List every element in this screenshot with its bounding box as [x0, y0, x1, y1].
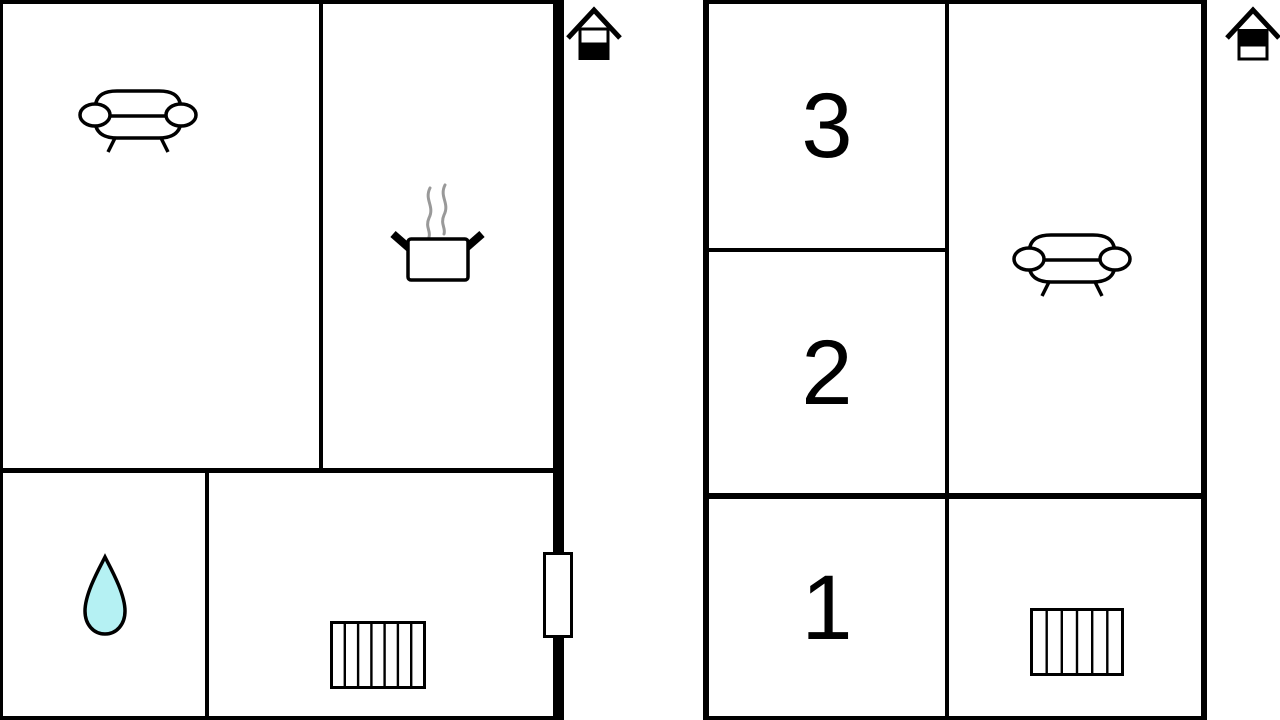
steam-icon: [428, 188, 431, 237]
wall-upper-outer-bottom: [703, 716, 1207, 720]
sofa-icon: [1012, 228, 1132, 300]
stairs-icon: [330, 621, 426, 689]
wall-ground-outer-left: [0, 0, 3, 720]
wall-upper-room2-room1-divider: [703, 493, 1207, 499]
door-marker: [543, 552, 573, 638]
wall-ground-mid-horizontal: [0, 468, 553, 473]
wall-ground-bathroom-divider: [205, 468, 209, 720]
wall-upper-outer-left: [703, 0, 709, 720]
wall-ground-outer-bottom: [0, 716, 564, 720]
room-3-label: 3: [709, 4, 945, 248]
stairs-icon: [1030, 608, 1124, 676]
wall-upper-room3-room2-divider: [709, 248, 945, 252]
wall-ground-outer-top: [0, 0, 564, 4]
house-level-upper-icon: [1225, 5, 1280, 62]
steam-icon: [443, 185, 446, 234]
room-1-label: 1: [709, 499, 945, 716]
room-2-label: 2: [709, 252, 945, 493]
wall-upper-outer-right: [1201, 0, 1207, 720]
wall-upper-outer-top: [703, 0, 1207, 4]
water-drop-icon: [80, 553, 130, 638]
cooking-pot-icon: [385, 182, 490, 287]
sofa-icon: [78, 84, 198, 156]
house-level-ground-icon: [566, 5, 622, 62]
wall-ground-kitchen-divider: [319, 0, 323, 472]
wall-upper-middle-vertical: [945, 0, 949, 720]
floor-plan-diagram: 3 2 1: [0, 0, 1280, 720]
